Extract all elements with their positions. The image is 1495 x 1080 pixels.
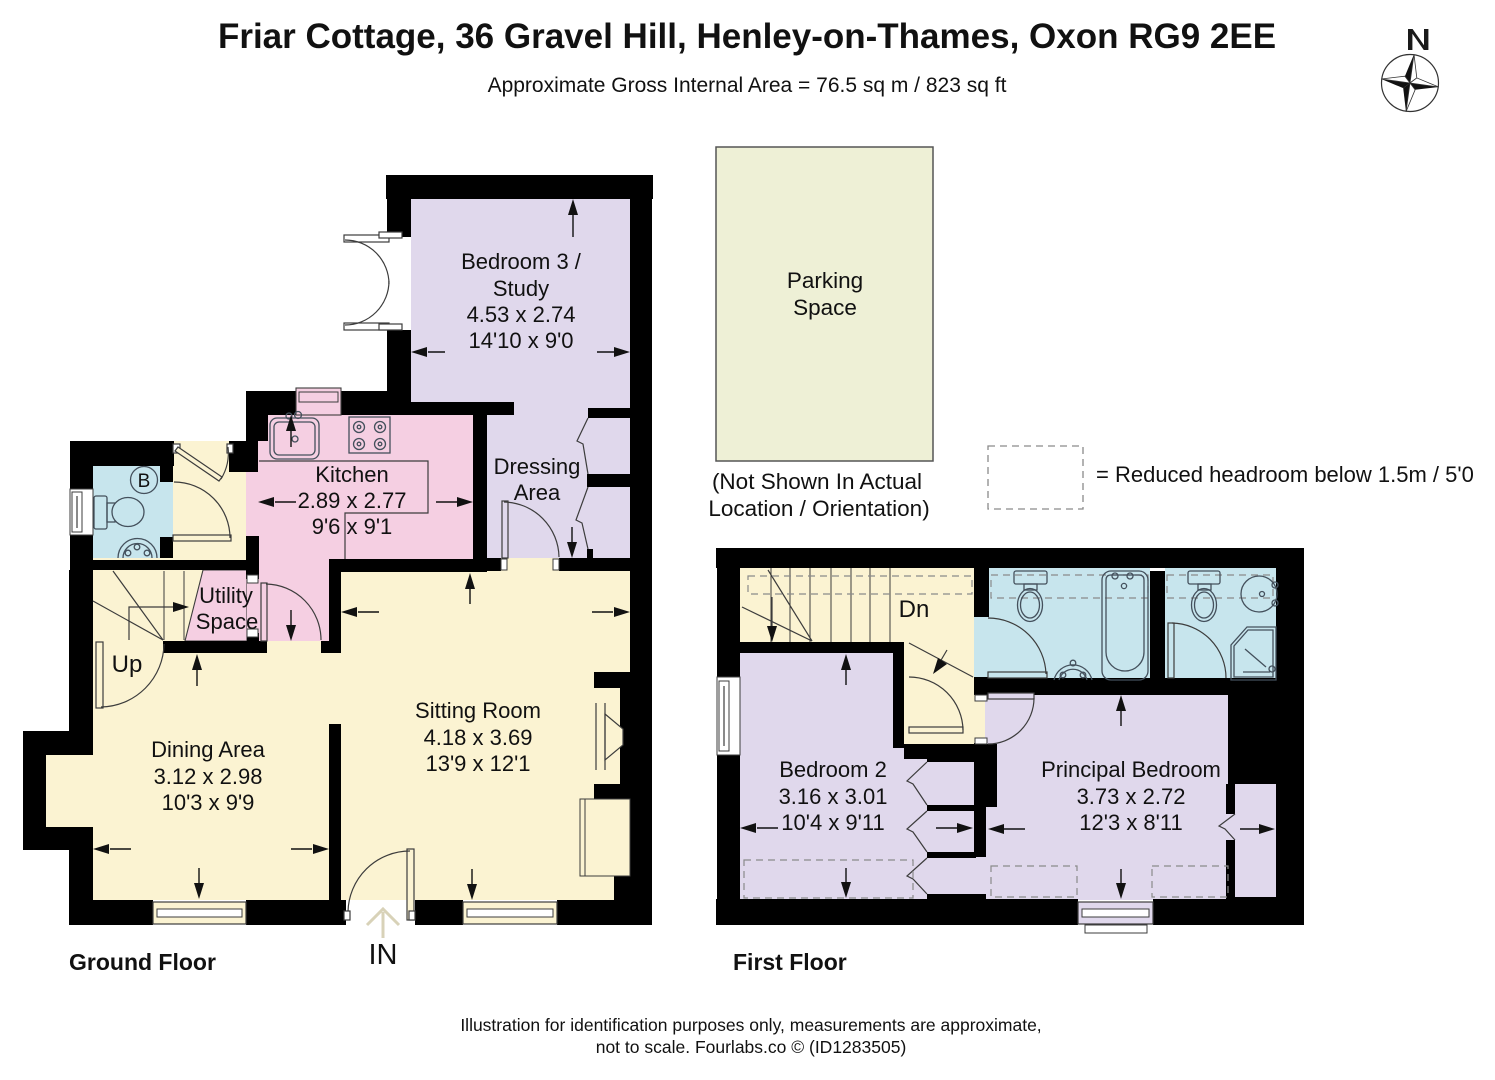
svg-text:IN: IN — [369, 939, 398, 971]
svg-text:3.12 x 2.98: 3.12 x 2.98 — [154, 764, 263, 789]
svg-text:10'3 x 9'9: 10'3 x 9'9 — [162, 790, 255, 815]
svg-text:Location / Orientation): Location / Orientation) — [708, 496, 929, 521]
svg-text:3.16 x 3.01: 3.16 x 3.01 — [779, 784, 888, 809]
svg-text:14'10 x 9'0: 14'10 x 9'0 — [468, 328, 573, 353]
svg-text:2.89 x 2.77: 2.89 x 2.77 — [298, 488, 407, 513]
svg-text:4.18 x 3.69: 4.18 x 3.69 — [424, 725, 533, 750]
svg-text:Sitting Room: Sitting Room — [415, 698, 541, 723]
svg-text:Kitchen: Kitchen — [315, 462, 388, 487]
svg-text:Space: Space — [793, 295, 857, 320]
svg-text:10'4 x 9'11: 10'4 x 9'11 — [781, 810, 884, 835]
svg-text:Space: Space — [196, 609, 258, 634]
svg-text:B: B — [138, 471, 151, 492]
svg-text:Utility: Utility — [199, 583, 253, 608]
svg-text:9'6 x 9'1: 9'6 x 9'1 — [312, 514, 393, 539]
svg-text:Principal Bedroom: Principal Bedroom — [1041, 757, 1221, 782]
svg-text:Bedroom 2: Bedroom 2 — [779, 757, 887, 782]
svg-text:Dining Area: Dining Area — [151, 737, 266, 762]
svg-text:Parking: Parking — [787, 268, 863, 293]
svg-text:3.73 x 2.72: 3.73 x 2.72 — [1077, 784, 1186, 809]
svg-text:Bedroom 3 /: Bedroom 3 / — [461, 249, 582, 274]
svg-text:4.53 x 2.74: 4.53 x 2.74 — [467, 302, 576, 327]
svg-text:not to scale. Fourlabs.co © (I: not to scale. Fourlabs.co © (ID1283505) — [596, 1037, 907, 1057]
svg-text:Study: Study — [493, 276, 549, 301]
svg-text:12'3 x 8'11: 12'3 x 8'11 — [1079, 810, 1182, 835]
svg-text:First Floor: First Floor — [733, 949, 847, 975]
svg-text:Illustration for identificatio: Illustration for identification purposes… — [460, 1015, 1041, 1035]
svg-text:Ground Floor: Ground Floor — [69, 949, 216, 975]
svg-text:Approximate Gross Internal Are: Approximate Gross Internal Area = 76.5 s… — [488, 74, 1007, 97]
svg-text:= Reduced headroom below 1.5m: = Reduced headroom below 1.5m / 5'0 — [1096, 462, 1474, 487]
svg-text:Dressing: Dressing — [494, 454, 581, 479]
svg-text:Area: Area — [514, 480, 561, 505]
svg-text:Friar Cottage, 36 Gravel Hill,: Friar Cottage, 36 Gravel Hill, Henley-on… — [218, 17, 1276, 56]
svg-text:(Not Shown In Actual: (Not Shown In Actual — [712, 469, 922, 494]
svg-text:Dn: Dn — [899, 596, 930, 623]
svg-text:Up: Up — [112, 651, 143, 678]
svg-text:13'9 x 12'1: 13'9 x 12'1 — [425, 751, 530, 776]
